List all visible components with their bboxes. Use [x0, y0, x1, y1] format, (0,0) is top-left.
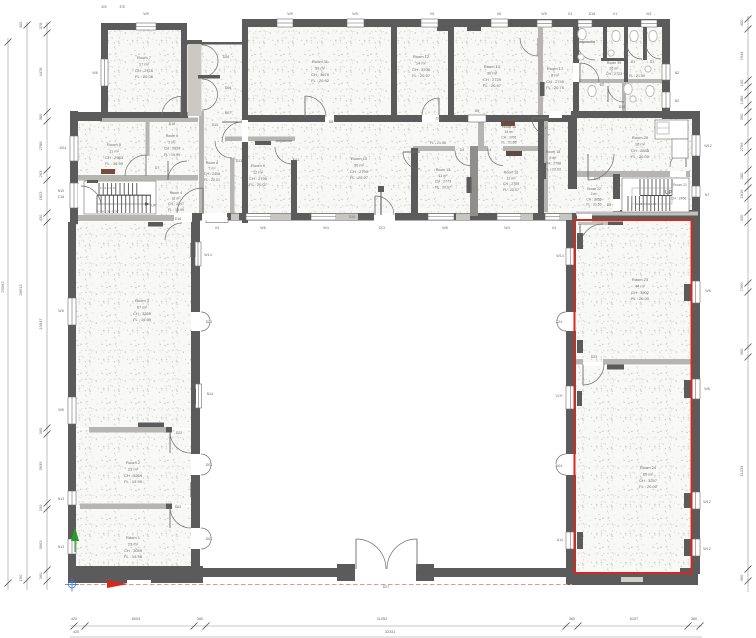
svg-text:30 m²: 30 m² [354, 162, 365, 167]
svg-text:6157: 6157 [630, 617, 638, 621]
svg-text:D4: D4 [487, 148, 492, 152]
svg-text:8 m²: 8 m² [551, 72, 560, 77]
svg-text:UP: UP [151, 203, 157, 208]
svg-text:N14: N14 [207, 392, 214, 396]
svg-text:W12: W12 [704, 144, 711, 148]
svg-text:UP: UP [665, 190, 673, 196]
svg-text:W9: W9 [287, 12, 292, 16]
svg-text:Room 12: Room 12 [413, 54, 430, 59]
svg-text:D07: D07 [225, 111, 232, 115]
svg-text:D23: D23 [591, 355, 598, 359]
svg-text:D10: D10 [212, 123, 219, 127]
svg-text:W8: W8 [260, 226, 265, 230]
svg-text:CH : 2824: CH : 2824 [164, 147, 180, 151]
svg-text:7390: 7390 [739, 282, 744, 292]
svg-text:D11: D11 [436, 117, 442, 121]
svg-text:9 m²: 9 m² [549, 156, 557, 160]
svg-text:3635: 3635 [38, 461, 43, 471]
svg-text:D2: D2 [600, 83, 605, 87]
svg-text:23 m²: 23 m² [128, 466, 139, 471]
svg-text:360: 360 [38, 427, 43, 434]
svg-text:360: 360 [739, 574, 744, 581]
svg-text:CH : 3255: CH : 3255 [133, 311, 152, 316]
svg-text:Room 23: Room 23 [632, 277, 649, 282]
svg-text:CH : 2768: CH : 2768 [545, 162, 561, 166]
svg-text:CH : 2856: CH : 2856 [586, 197, 601, 201]
svg-text:378: 378 [119, 5, 125, 9]
svg-text:D22: D22 [176, 431, 183, 435]
svg-text:Room 10: Room 10 [351, 156, 368, 161]
svg-text:3·-28·1·34·-0·38*: 3·-28·1·34·-0·38* [97, 210, 120, 214]
svg-text:Room 6: Room 6 [166, 134, 179, 138]
svg-text:30 m²: 30 m² [487, 70, 498, 75]
svg-text:W4: W4 [504, 226, 509, 230]
svg-text:D26: D26 [223, 55, 230, 59]
svg-text:Room 17: Room 17 [547, 66, 564, 71]
svg-text:C16: C16 [58, 195, 65, 199]
svg-text:378: 378 [38, 22, 43, 29]
svg-text:Room 21: Room 21 [673, 183, 687, 187]
svg-text:V4: V4 [215, 226, 219, 230]
svg-text:D04: D04 [206, 537, 213, 541]
svg-text:D8: D8 [329, 120, 334, 124]
svg-text:D15: D15 [349, 215, 356, 219]
svg-text:65 m²: 65 m² [643, 471, 654, 476]
svg-text:7 m²: 7 m² [208, 167, 216, 171]
svg-text:Room 2: Room 2 [126, 460, 141, 465]
svg-text:N13: N13 [58, 545, 65, 549]
svg-text:CH : 3269: CH : 3269 [124, 473, 143, 478]
svg-text:CH : 2723: CH : 2723 [606, 72, 622, 76]
svg-text:1823: 1823 [38, 191, 43, 201]
svg-text:2 m²: 2 m² [591, 192, 599, 196]
svg-text:W1: W1 [646, 12, 651, 16]
svg-text:FL : 20.07: FL : 20.07 [503, 188, 519, 192]
svg-text:W5: W5 [352, 12, 357, 16]
svg-text:FL : 21.59: FL : 21.59 [501, 141, 516, 145]
svg-text:W14: W14 [204, 253, 211, 257]
svg-text:FL : 20.01: FL : 20.01 [204, 178, 220, 182]
svg-text:FL : 20.00: FL : 20.00 [631, 296, 650, 301]
svg-text:W8: W8 [92, 71, 97, 75]
svg-text:A14: A14 [557, 538, 563, 542]
svg-text:360: 360 [569, 617, 575, 621]
svg-text:W12: W12 [703, 547, 710, 551]
svg-text:380: 380 [38, 113, 43, 120]
svg-text:400: 400 [18, 21, 23, 28]
svg-text:360: 360 [739, 348, 744, 355]
svg-text:11 m²: 11 m² [109, 148, 120, 153]
svg-text:FL : 19.99: FL : 19.99 [105, 161, 124, 166]
svg-text:W6: W6 [704, 387, 709, 391]
svg-text:D1: D1 [631, 60, 636, 64]
svg-text:FL : 20.03: FL : 20.03 [545, 167, 561, 171]
svg-text:29062: 29062 [0, 281, 5, 293]
svg-text:44 m²: 44 m² [635, 283, 646, 288]
svg-text:67 m²: 67 m² [137, 304, 148, 309]
svg-text:420: 420 [73, 630, 79, 634]
svg-text:CH : 3202: CH : 3202 [631, 290, 650, 295]
svg-text:Room 15: Room 15 [436, 168, 451, 172]
svg-text:FL : 21.50: FL : 21.50 [430, 141, 446, 145]
svg-text:N2: N2 [675, 71, 680, 75]
svg-text:8003: 8003 [132, 617, 140, 621]
svg-text:360: 360 [739, 113, 744, 120]
svg-text:D16: D16 [619, 105, 626, 109]
svg-text:FL : 21.59: FL : 21.59 [586, 203, 601, 207]
svg-text:39 m²: 39 m² [315, 65, 326, 70]
svg-text:D18: D18 [589, 12, 596, 16]
svg-text:1486: 1486 [739, 95, 744, 105]
svg-text:FL : 20.97: FL : 20.97 [412, 73, 431, 78]
svg-text:CH : 3679: CH : 3679 [311, 72, 330, 77]
svg-text:FL : 19.98: FL : 19.98 [124, 554, 143, 559]
svg-text:Room 1: Room 1 [126, 535, 141, 540]
svg-text:D04: D04 [556, 464, 563, 468]
svg-text:CH : 2848: CH : 2848 [631, 148, 650, 153]
svg-text:FL : 20.07: FL : 20.07 [350, 175, 369, 180]
svg-text:D7: D7 [155, 166, 160, 170]
svg-text:D11: D11 [293, 158, 299, 162]
svg-text:CH : 2790: CH : 2790 [249, 176, 268, 181]
svg-text:Room 7: Room 7 [137, 55, 152, 60]
svg-text:D06: D06 [225, 86, 232, 90]
svg-text:4478: 4478 [38, 67, 43, 77]
svg-text:D17: D17 [542, 126, 549, 130]
svg-text:CH : 2790: CH : 2790 [350, 169, 369, 174]
svg-text:V1: V1 [613, 12, 617, 16]
svg-text:CH : 2716: CH : 2716 [135, 68, 154, 73]
svg-text:26 m²: 26 m² [609, 67, 619, 71]
svg-text:FL : 20.76: FL : 20.76 [546, 85, 565, 90]
svg-text:CH : 2791: CH : 2791 [501, 135, 516, 139]
svg-text:190: 190 [18, 574, 23, 581]
svg-text:Room 9: Room 9 [251, 163, 266, 168]
svg-text:W8: W8 [442, 226, 447, 230]
svg-text:11 m²: 11 m² [439, 174, 449, 178]
svg-text:D09: D09 [594, 177, 601, 181]
svg-text:Room 20: Room 20 [632, 135, 649, 140]
svg-text:CH : 2729: CH : 2729 [483, 77, 502, 82]
svg-text:CH : 2147: CH : 2147 [168, 202, 184, 206]
svg-text:Room 14: Room 14 [502, 125, 516, 129]
svg-text:FL : 20.92: FL : 20.92 [311, 78, 330, 83]
svg-text:6·7·8·9·10·11: 6·7·8·9·10·11 [100, 186, 116, 190]
svg-text:V1H: V1H [556, 394, 563, 398]
svg-text:FL : 19.99: FL : 19.99 [168, 208, 184, 212]
svg-text:FL : 20.06: FL : 20.06 [135, 74, 154, 79]
svg-text:14 m²: 14 m² [416, 60, 427, 65]
svg-text:CH : 2754: CH : 2754 [503, 182, 519, 186]
svg-text:360: 360 [691, 617, 697, 621]
svg-text:V4: V4 [552, 226, 556, 230]
svg-text:CH : 2983: CH : 2983 [105, 155, 124, 160]
svg-text:W9: W9 [143, 12, 148, 16]
svg-text:Room 22: Room 22 [587, 187, 601, 191]
svg-text:D24: D24 [206, 320, 213, 324]
svg-text:12 m²: 12 m² [253, 169, 264, 174]
svg-text:N10: N10 [58, 189, 65, 193]
svg-text:W11: W11 [59, 146, 66, 150]
svg-text:W14: W14 [556, 254, 563, 258]
svg-text:263: 263 [38, 170, 43, 177]
svg-text:CH : 2773: CH : 2773 [435, 180, 451, 184]
svg-text:2788: 2788 [38, 141, 43, 151]
svg-text:3+28·1·34+6·38: 3+28·1·34+6·38 [636, 202, 657, 206]
svg-text:D04: D04 [206, 463, 213, 467]
svg-text:D9: D9 [475, 109, 480, 113]
svg-text:430: 430 [739, 214, 744, 221]
svg-text:FL : 20.00: FL : 20.00 [631, 154, 650, 159]
svg-text:380: 380 [197, 617, 203, 621]
svg-text:2756: 2756 [739, 142, 744, 152]
svg-text:D02: D02 [175, 505, 182, 509]
svg-text:Room 16: Room 16 [504, 171, 519, 175]
svg-text:11 m²: 11 m² [505, 130, 514, 134]
svg-text:2 m²: 2 m² [168, 140, 176, 144]
svg-text:11 m²: 11 m² [507, 176, 517, 180]
svg-text:DCt: DCt [379, 226, 385, 230]
svg-text:D1: D1 [650, 60, 655, 64]
svg-text:V6: V6 [497, 12, 501, 16]
svg-text:FL : 19.99: FL : 19.99 [164, 153, 180, 157]
svg-text:FL : 19.99: FL : 19.99 [124, 479, 143, 484]
svg-text:W8: W8 [58, 408, 63, 412]
svg-text:D24: D24 [556, 320, 563, 324]
svg-text:Room 18: Room 18 [546, 150, 561, 154]
svg-text:10947: 10947 [38, 318, 43, 330]
svg-text:W4: W4 [323, 226, 328, 230]
svg-text:CH : 2708: CH : 2708 [412, 67, 431, 72]
svg-text:360: 360 [38, 572, 43, 579]
svg-text:11052: 11052 [377, 617, 387, 621]
svg-text:23 m²: 23 m² [128, 541, 139, 546]
svg-text:CH : 2745: CH : 2745 [546, 79, 565, 84]
svg-text:28913: 28913 [18, 284, 23, 296]
svg-text:100: 100 [739, 79, 744, 86]
svg-text:FL : 21.59: FL : 21.59 [629, 74, 645, 78]
svg-text:CH : 2408: CH : 2408 [204, 172, 220, 176]
svg-text:FL : 20.00: FL : 20.00 [639, 484, 658, 489]
svg-text:420: 420 [71, 617, 77, 621]
svg-text:Room 5: Room 5 [107, 142, 122, 147]
svg-text:W5: W5 [541, 12, 546, 16]
svg-text:FL : 20.07: FL : 20.07 [249, 182, 268, 187]
svg-text:D9: D9 [607, 203, 612, 207]
svg-text:W12: W12 [703, 500, 710, 504]
svg-text:Room 8: Room 8 [206, 161, 219, 165]
svg-text:11234: 11234 [739, 465, 744, 477]
svg-text:Room 4: Room 4 [170, 191, 183, 195]
svg-text:17 m²: 17 m² [139, 61, 150, 66]
svg-text:CH : 2456: CH : 2456 [671, 197, 686, 201]
svg-text:D4: D4 [460, 148, 465, 152]
svg-text:Room 11: Room 11 [312, 59, 329, 64]
svg-text:W8: W8 [58, 309, 63, 313]
svg-text:D27: D27 [383, 585, 390, 589]
svg-text:Room 19: Room 19 [607, 61, 622, 65]
svg-text:D13: D13 [236, 159, 243, 163]
svg-text:280: 280 [739, 172, 744, 179]
svg-text:Room 13: Room 13 [484, 64, 501, 69]
svg-text:16 m²: 16 m² [635, 141, 646, 146]
svg-text:W6: W6 [705, 289, 710, 293]
svg-text:N13: N13 [58, 497, 65, 501]
svg-text:FL : 20.07: FL : 20.07 [435, 185, 451, 189]
svg-text:CH : 3247: CH : 3247 [639, 478, 658, 483]
svg-text:400: 400 [101, 5, 107, 9]
svg-text:3663: 3663 [38, 540, 43, 550]
svg-text:290: 290 [38, 504, 43, 511]
svg-text:CH : 3059: CH : 3059 [124, 548, 143, 553]
svg-text:FL : 19.99: FL : 19.99 [133, 317, 152, 322]
svg-text:400: 400 [739, 19, 744, 26]
svg-text:V6: V6 [430, 12, 434, 16]
svg-text:Room 24: Room 24 [640, 465, 657, 470]
svg-text:Room 3: Room 3 [135, 298, 150, 303]
svg-text:FL : 20.97: FL : 20.97 [483, 83, 502, 88]
svg-text:D16: D16 [175, 217, 182, 221]
svg-text:11 m²: 11 m² [172, 197, 182, 201]
svg-text:7944: 7944 [739, 51, 744, 61]
svg-text:N2: N2 [675, 99, 680, 103]
svg-text:1816: 1816 [739, 189, 744, 199]
svg-text:32331: 32331 [385, 630, 396, 634]
svg-text:430: 430 [38, 214, 43, 221]
svg-text:V3: V3 [568, 12, 572, 16]
svg-text:D18: D18 [169, 122, 176, 126]
svg-text:N7: N7 [705, 193, 710, 197]
